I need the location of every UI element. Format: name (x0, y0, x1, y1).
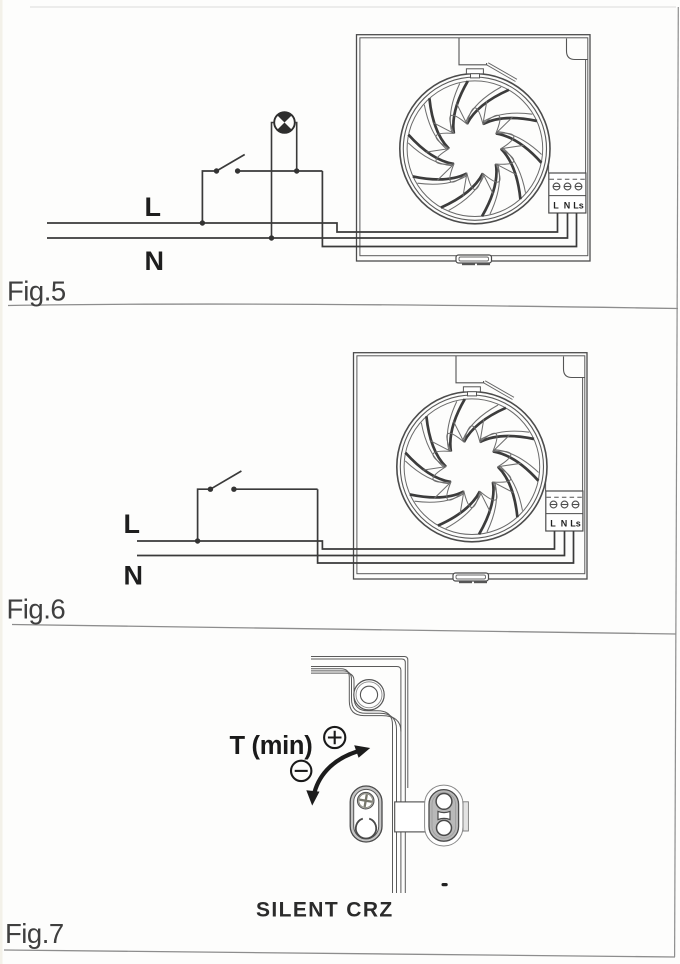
svg-text:T (min): T (min) (230, 732, 313, 760)
svg-text:N: N (124, 561, 144, 591)
svg-text:SILENT CRZ: SILENT CRZ (256, 899, 394, 922)
svg-text:L: L (124, 509, 141, 539)
svg-text:Fig.5: Fig.5 (7, 276, 66, 307)
svg-text:Fig.7: Fig.7 (5, 918, 64, 949)
svg-text:L: L (145, 192, 162, 222)
svg-text:N: N (145, 246, 165, 276)
svg-text:Fig.6: Fig.6 (7, 594, 66, 625)
svg-text:N: N (564, 201, 571, 211)
svg-text:L: L (553, 201, 559, 211)
svg-text:Ls: Ls (573, 201, 584, 211)
